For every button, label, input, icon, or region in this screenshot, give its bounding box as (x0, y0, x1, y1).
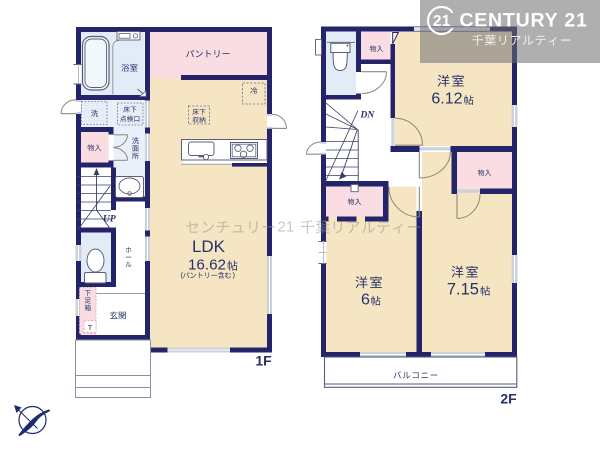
svg-text:21: 21 (278, 219, 295, 236)
svg-text:21: 21 (433, 13, 451, 30)
svg-text:16.62: 16.62 (188, 257, 226, 274)
svg-text:CENTURY 21: CENTURY 21 (459, 10, 587, 32)
svg-text:1F: 1F (255, 353, 272, 369)
svg-text:6.12: 6.12 (431, 91, 462, 108)
svg-text:7.15: 7.15 (447, 281, 479, 299)
svg-text:DN: DN (360, 111, 376, 121)
svg-text:2F: 2F (500, 391, 517, 407)
svg-text:6: 6 (361, 292, 370, 309)
svg-text:LDK: LDK (192, 237, 226, 256)
svg-text:T: T (88, 323, 93, 332)
svg-text:UP: UP (103, 215, 116, 225)
